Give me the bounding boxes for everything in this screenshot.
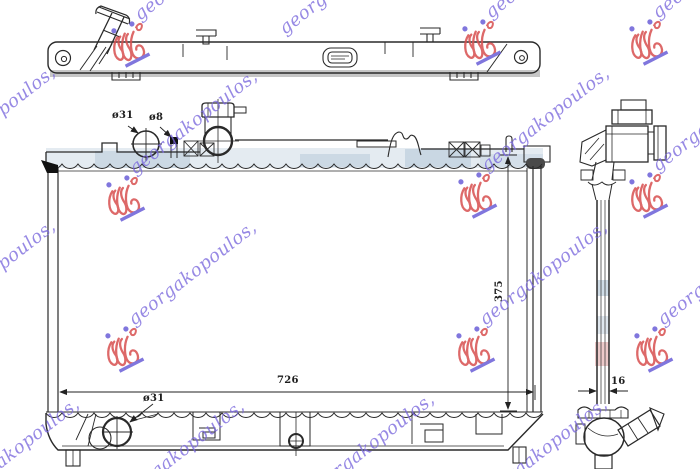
label-core-thickness: 16 bbox=[611, 376, 626, 387]
label-top-inlet-diameter: ø31 bbox=[112, 110, 134, 121]
side-view-drawing bbox=[576, 100, 666, 469]
drawing-canvas bbox=[0, 0, 700, 469]
front-view-drawing bbox=[41, 99, 550, 466]
top-view-drawing bbox=[48, 6, 540, 80]
radiator-technical-drawing: ø31 ø8 375 726 ø31 16 georgakopoulos, ge… bbox=[0, 0, 700, 469]
side-view-filler bbox=[580, 100, 666, 200]
side-view-core bbox=[595, 200, 609, 404]
dimension-lines bbox=[60, 126, 628, 422]
label-bottom-outlet-diameter: ø31 bbox=[143, 393, 165, 404]
top-view-filler-neck bbox=[94, 6, 130, 54]
side-view-bottom-outlet bbox=[576, 407, 664, 469]
label-core-height: 375 bbox=[494, 280, 505, 302]
front-view-bottom-tank bbox=[46, 412, 543, 466]
label-overall-width: 726 bbox=[277, 375, 299, 386]
top-view-connector bbox=[323, 48, 357, 67]
label-bleed-hole-diameter: ø8 bbox=[149, 112, 163, 123]
